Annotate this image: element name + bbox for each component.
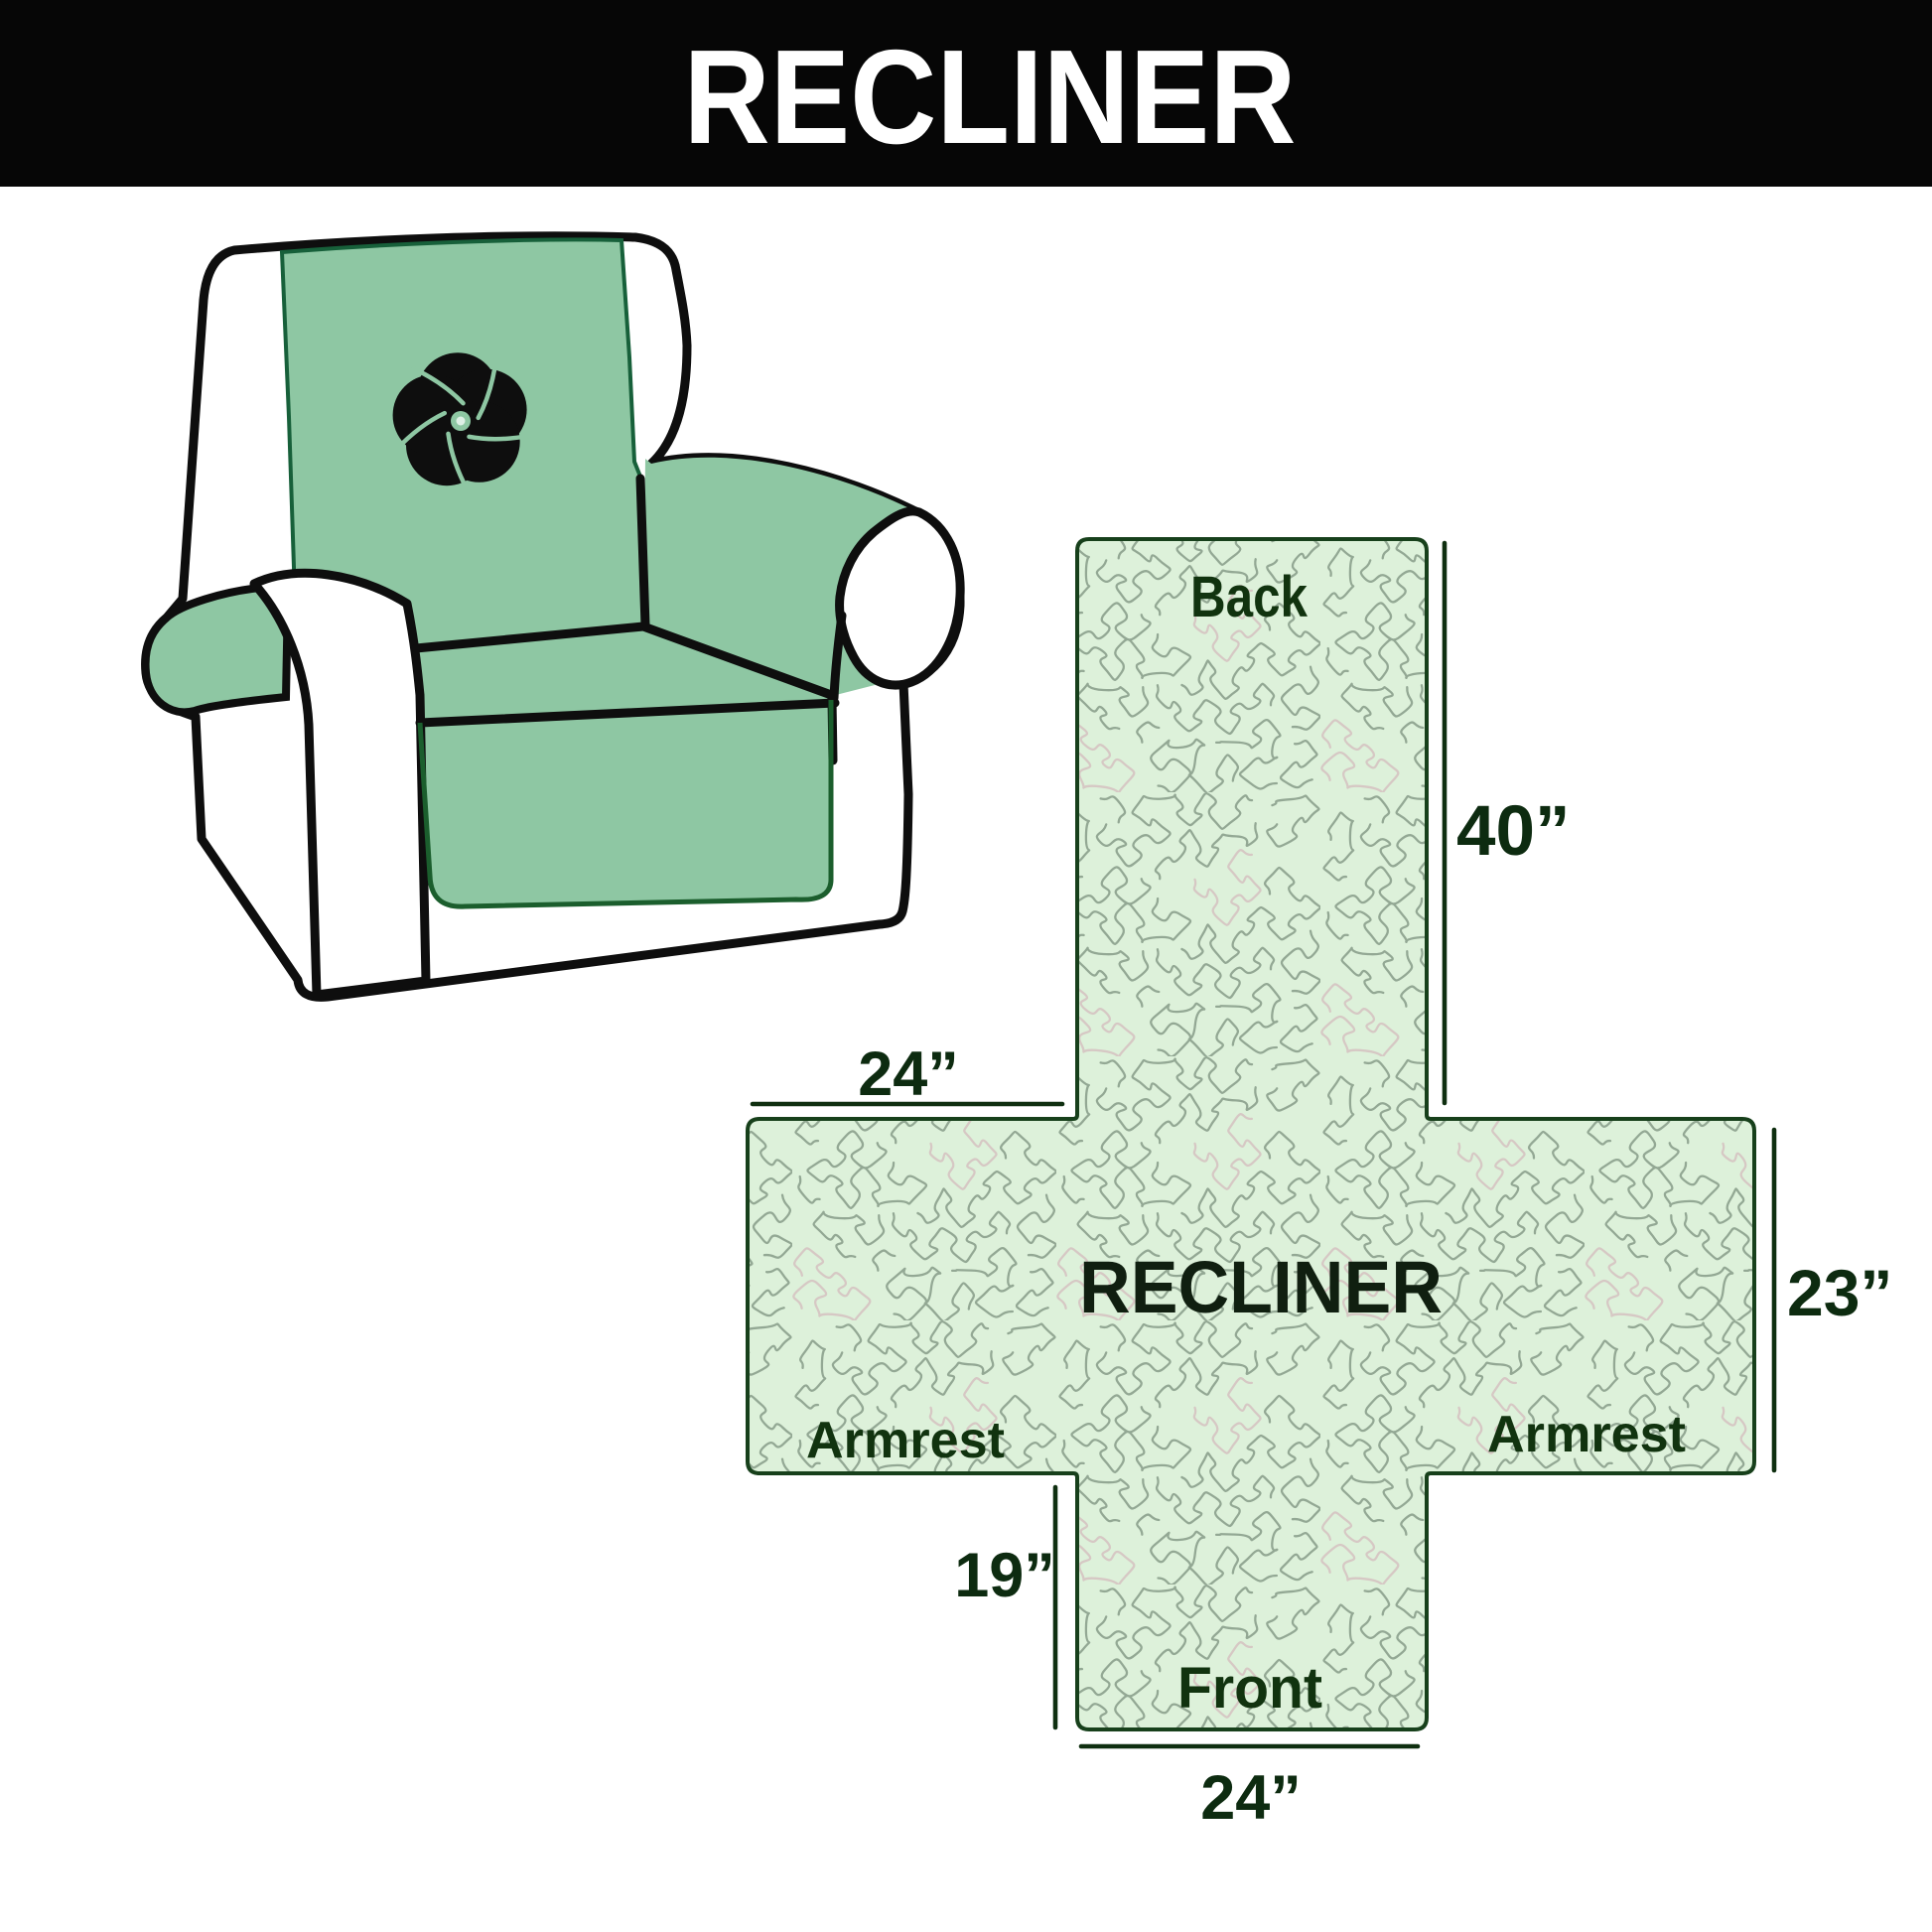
svg-text:Front: Front xyxy=(1177,1656,1322,1721)
svg-text:Back: Back xyxy=(1190,565,1309,629)
svg-text:RECLINER: RECLINER xyxy=(684,22,1297,172)
svg-text:Armrest: Armrest xyxy=(1487,1406,1686,1463)
svg-text:19”: 19” xyxy=(954,1541,1055,1610)
svg-text:Armrest: Armrest xyxy=(806,1412,1005,1469)
svg-text:RECLINER: RECLINER xyxy=(1079,1246,1443,1328)
svg-text:23”: 23” xyxy=(1787,1256,1892,1329)
svg-text:24”: 24” xyxy=(858,1039,959,1109)
svg-text:24”: 24” xyxy=(1200,1763,1302,1833)
svg-text:40”: 40” xyxy=(1456,792,1570,871)
